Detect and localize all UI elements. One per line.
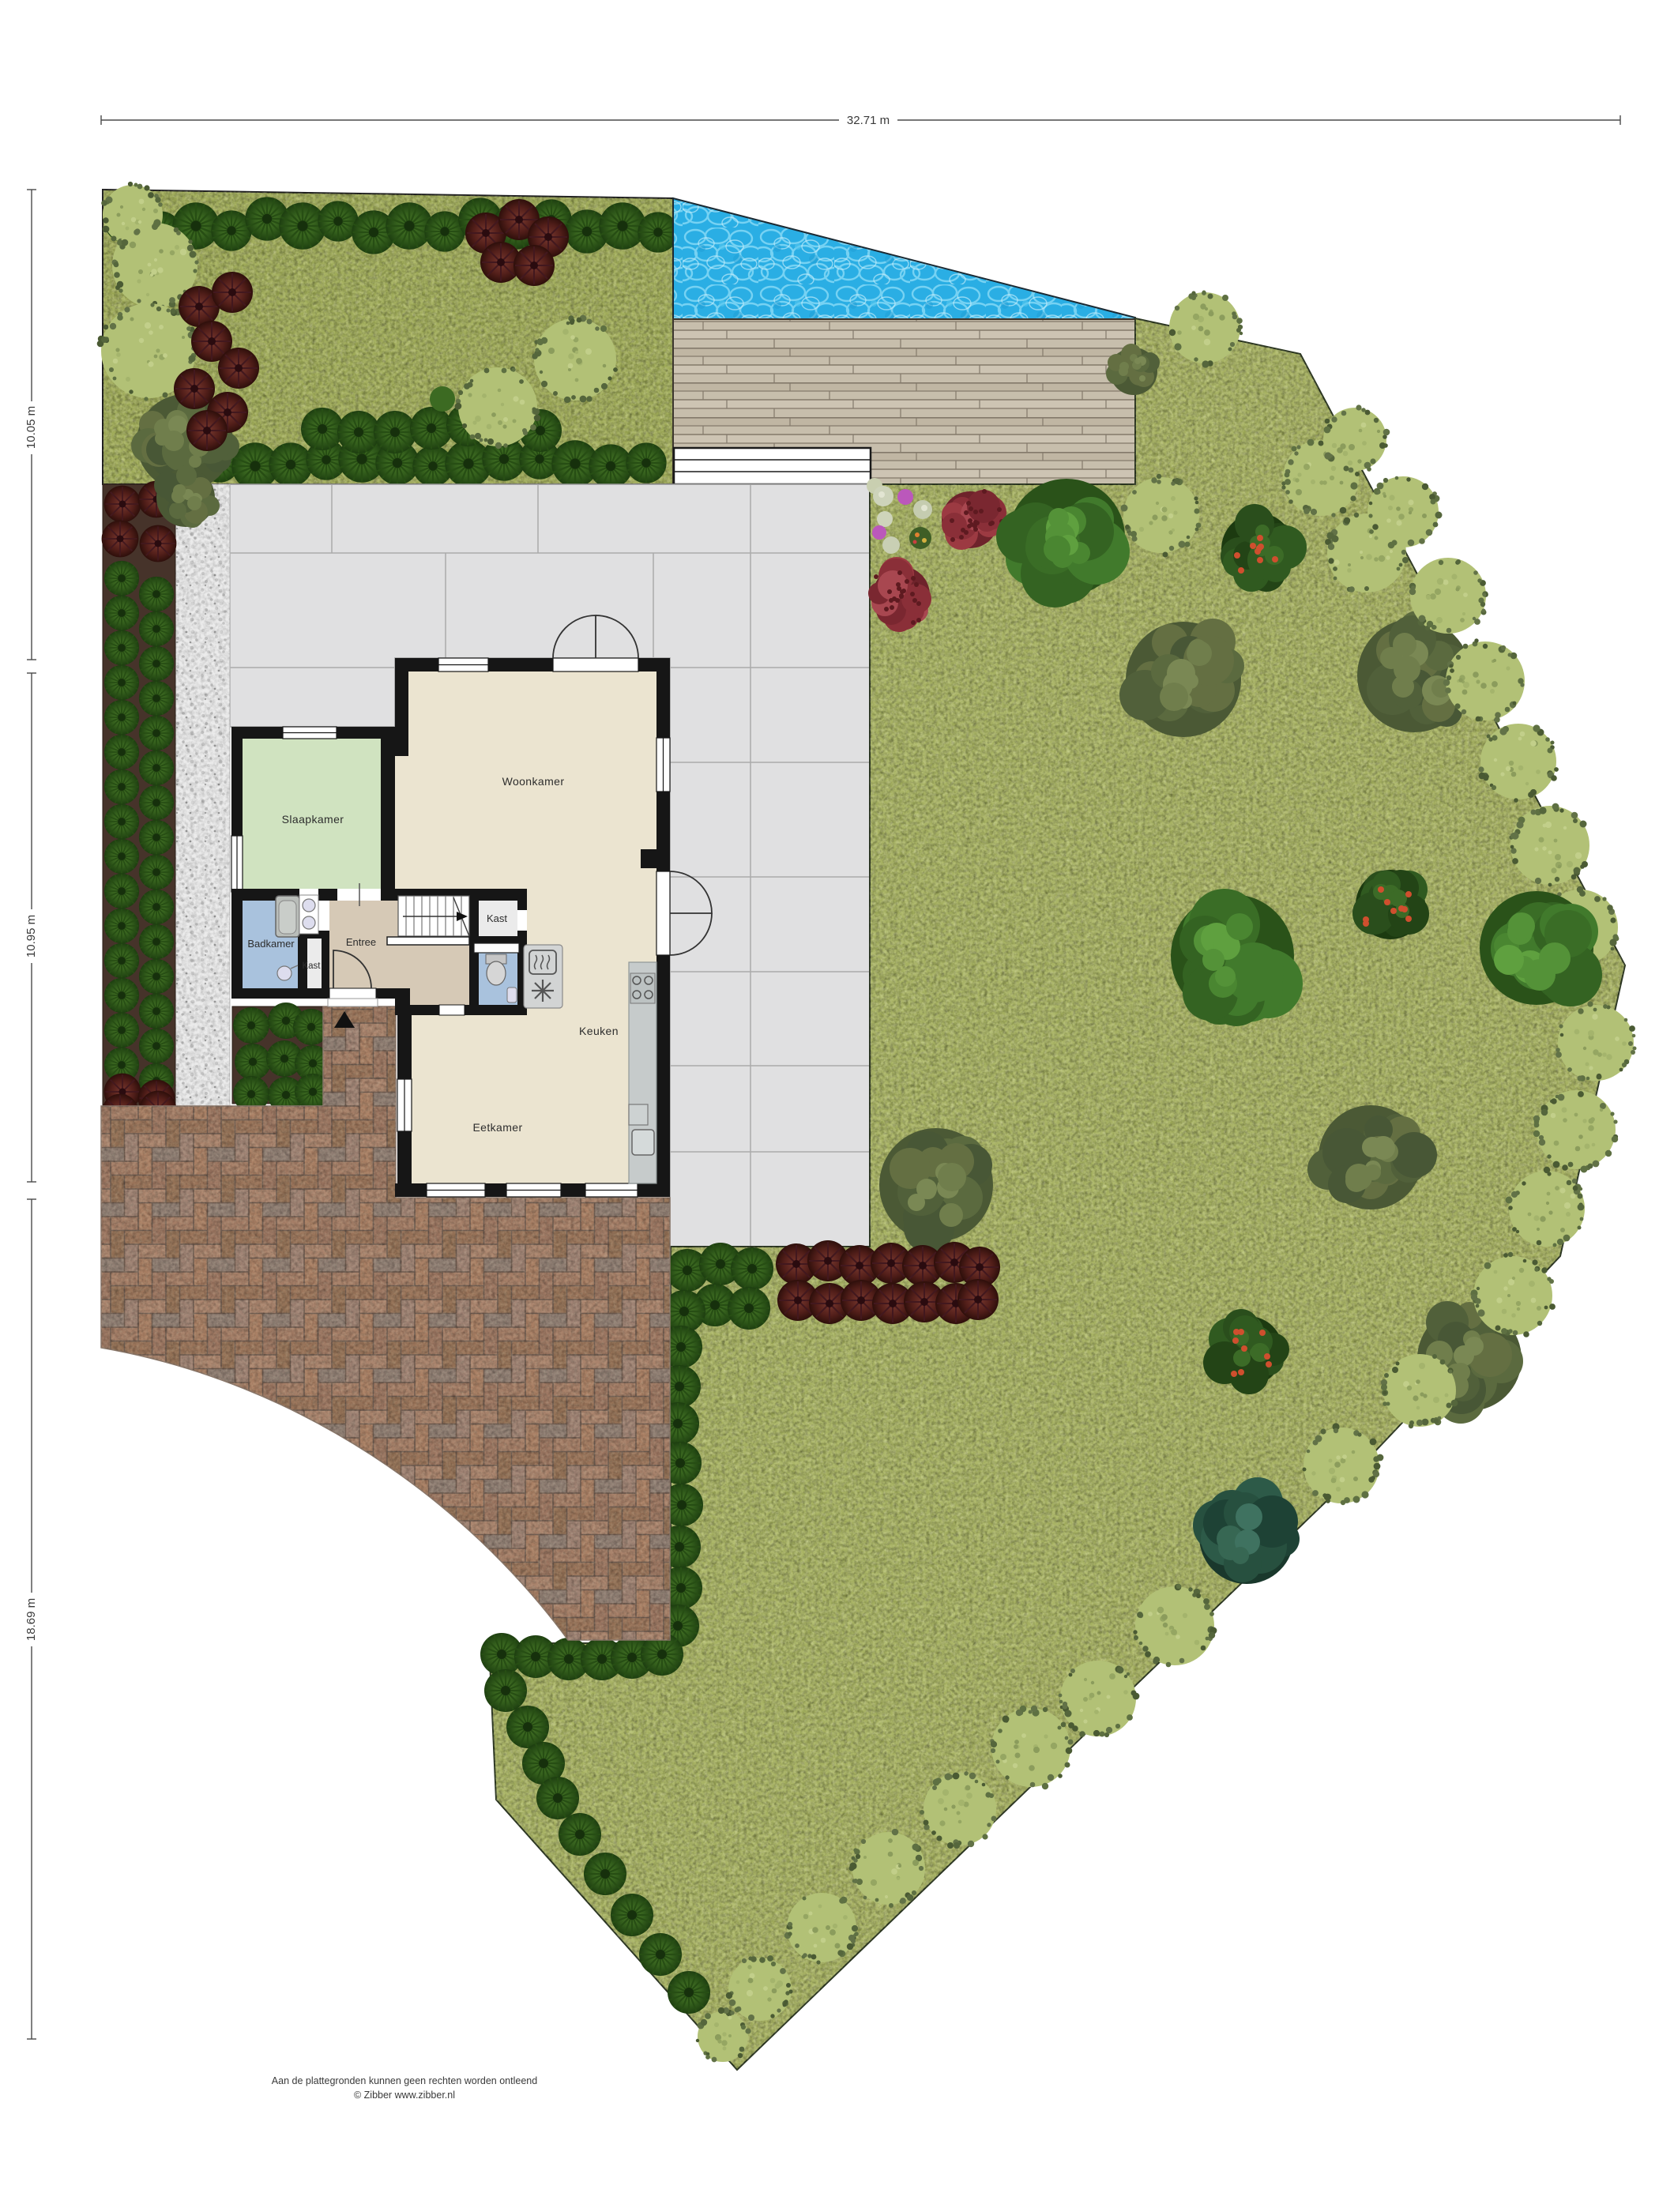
svg-text:Entree: Entree	[346, 936, 376, 948]
svg-text:Woonkamer: Woonkamer	[502, 775, 565, 788]
svg-text:10.05 m: 10.05 m	[24, 406, 38, 449]
svg-text:© Zibber www.zibber.nl: © Zibber www.zibber.nl	[354, 2090, 455, 2101]
svg-text:32.71 m: 32.71 m	[847, 114, 890, 127]
svg-text:Eetkamer: Eetkamer	[472, 1121, 522, 1134]
svg-text:Aan de plattegronden kunnen ge: Aan de plattegronden kunnen geen rechten…	[272, 2075, 537, 2086]
svg-text:10.95 m: 10.95 m	[24, 915, 38, 957]
svg-text:Badkamer: Badkamer	[247, 938, 295, 950]
svg-text:Slaapkamer: Slaapkamer	[282, 813, 344, 826]
svg-text:Kast: Kast	[302, 961, 321, 971]
svg-text:Kast: Kast	[487, 912, 507, 924]
svg-text:Keuken: Keuken	[579, 1025, 619, 1037]
svg-text:18.69 m: 18.69 m	[24, 1598, 38, 1641]
